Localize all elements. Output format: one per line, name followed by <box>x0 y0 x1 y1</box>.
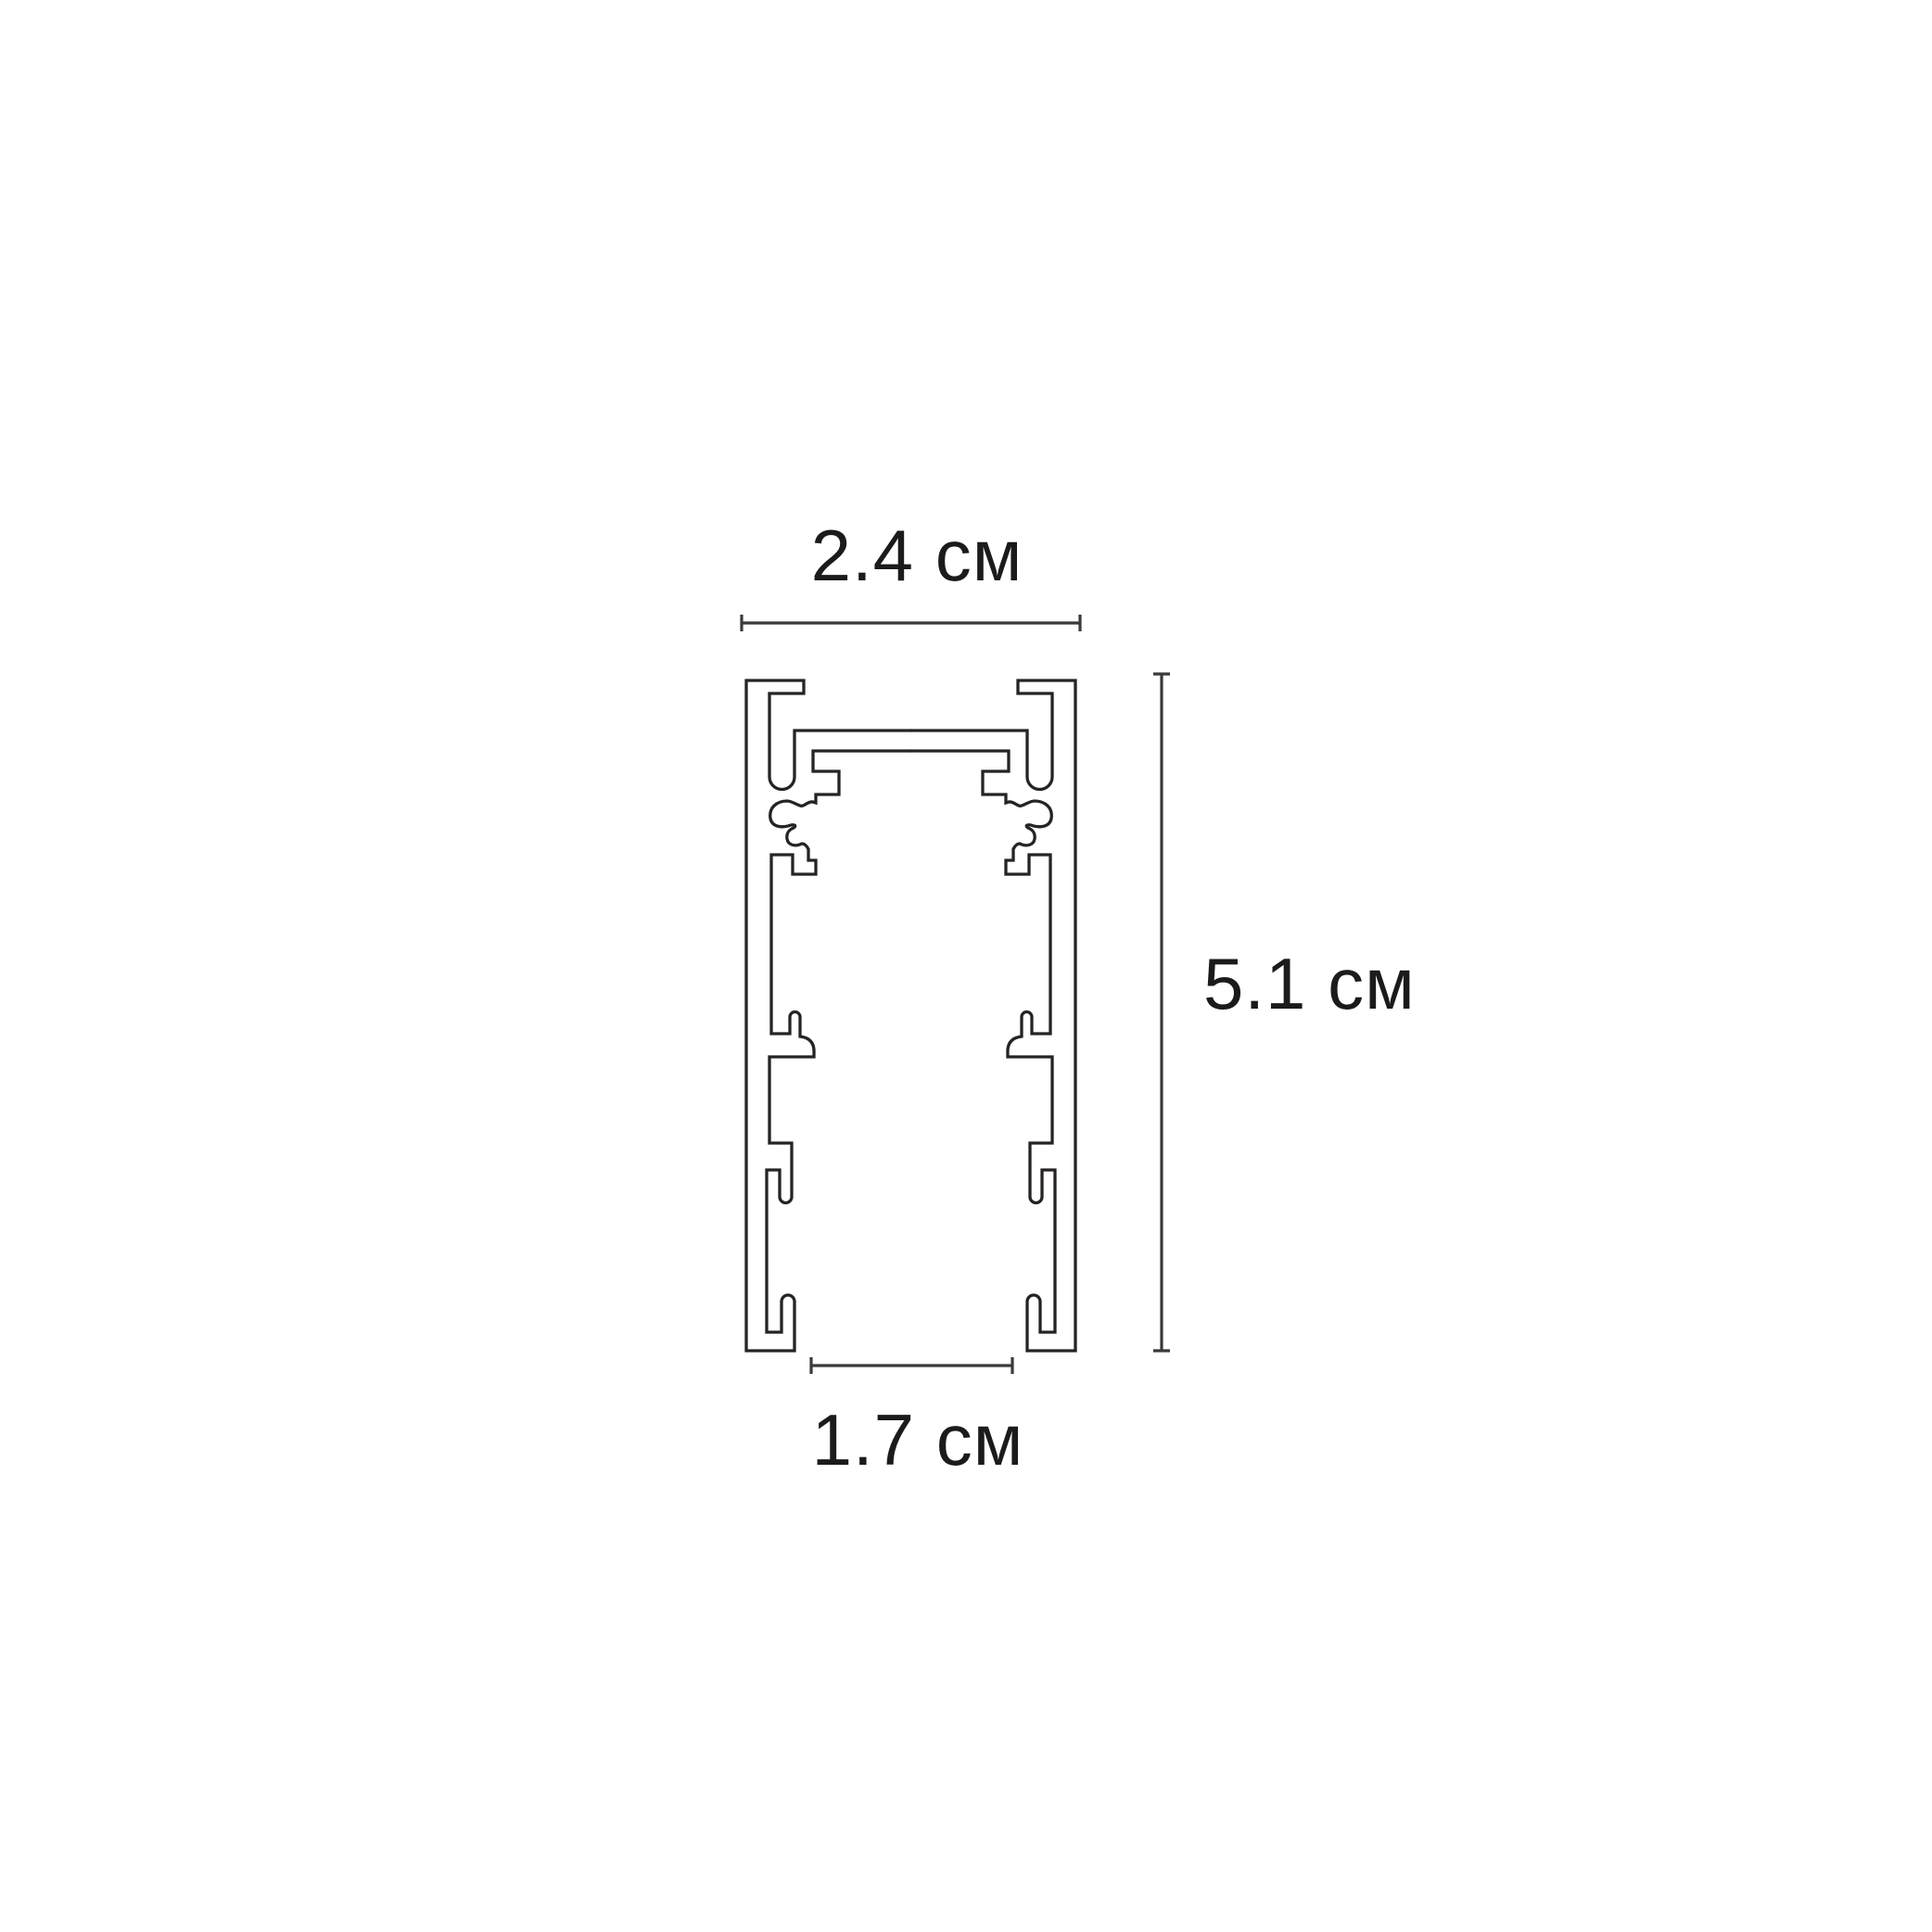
profile-drawing-svg <box>0 0 1932 1932</box>
bottom-width-dimension-label: 1.7 см <box>686 1404 1150 1476</box>
top-width-dimension-line <box>742 615 1080 631</box>
profile-outline-right <box>910 680 1075 1351</box>
bottom-width-dimension-line <box>811 1357 1012 1374</box>
profile-outline-left <box>746 680 911 1351</box>
dimension-drawing: 2.4 см 5.1 см 1.7 см <box>0 0 1932 1932</box>
right-height-dimension-line <box>1153 674 1170 1351</box>
right-height-dimension-label: 5.1 см <box>1203 947 1416 1020</box>
top-width-dimension-label: 2.4 см <box>685 519 1149 591</box>
